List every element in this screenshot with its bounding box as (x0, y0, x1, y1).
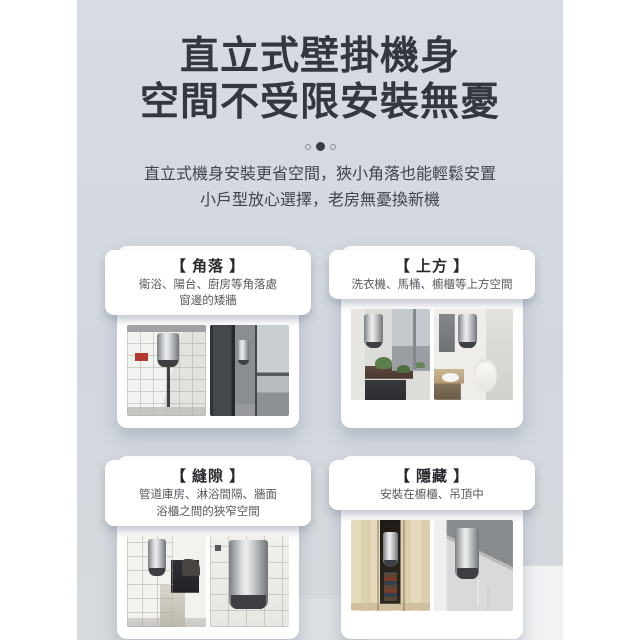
page-subtitle-line2: 小戶型放心選擇，老房無憂換新機 (77, 188, 563, 214)
card-hidden: 【 隱藏 】 安裝在櫥櫃、吊頂中 (341, 456, 523, 638)
page-subtitle: 直立式機身安裝更省空間，狹小角落也能輕鬆安置 小戶型放心選擇，老房無憂換新機 (77, 162, 563, 213)
page-title: 直立式壁掛機身 空間不受限安裝無憂 (77, 34, 563, 126)
water-heater-icon (229, 540, 269, 609)
card-corner-description: 衛浴、陽台、廚房等角落處 窗邊的矮牆 (111, 277, 305, 309)
water-heater-icon (364, 314, 383, 349)
card-gap-description: 管道庫房、淋浴間隔、牆面 浴櫃之間的狹窄空間 (111, 487, 305, 519)
photo-above-balcony-counter (351, 309, 430, 400)
card-above: 【 上方 】 洗衣機、馬桶、櫥櫃等上方空間 (341, 246, 523, 428)
card-gap-photos (127, 536, 289, 627)
card-gap: 【 縫隙 】 管道庫房、淋浴間隔、牆面 浴櫃之間的狹窄空間 (117, 456, 299, 638)
carousel-dot-3[interactable] (330, 144, 336, 150)
page-subtitle-line1: 直立式機身安裝更省空間，狹小角落也能輕鬆安置 (77, 162, 563, 188)
card-hidden-photos (351, 520, 513, 611)
page-title-line1: 直立式壁掛機身 (77, 34, 563, 80)
photo-bathroom-corner (127, 325, 206, 416)
cards-grid: 【 角落 】 衛浴、陽台、廚房等角落處 窗邊的矮牆 (77, 246, 563, 638)
photo-gap-above-washer (127, 536, 206, 627)
page-title-line2: 空間不受限安裝無憂 (77, 80, 563, 126)
card-corner: 【 角落 】 衛浴、陽台、廚房等角落處 窗邊的矮牆 (117, 246, 299, 428)
card-above-description: 洗衣機、馬桶、櫥櫃等上方空間 (335, 277, 529, 293)
water-heater-icon (383, 532, 397, 567)
card-above-header: 【 上方 】 洗衣機、馬桶、櫥櫃等上方空間 (329, 250, 535, 299)
water-heater-icon (237, 340, 250, 365)
card-corner-title: 【 角落 】 (111, 255, 305, 276)
photo-above-toilet (434, 309, 513, 400)
photo-hidden-under-ceiling (434, 520, 513, 611)
water-heater-icon (455, 528, 479, 579)
photo-heater-closeup (210, 536, 289, 627)
photo-hidden-in-cabinet (351, 520, 430, 611)
page-root: 直立式壁掛機身 空間不受限安裝無憂 直立式機身安裝更省空間，狹小角落也能輕鬆安置… (0, 0, 640, 640)
carousel-dot-1[interactable] (305, 144, 311, 150)
card-hidden-description: 安裝在櫥櫃、吊頂中 (335, 487, 529, 503)
card-hidden-title: 【 隱藏 】 (335, 465, 529, 486)
card-above-photos (351, 309, 513, 400)
water-heater-icon (458, 314, 477, 349)
carousel-dot-2-active[interactable] (316, 142, 325, 151)
card-corner-photos (127, 325, 289, 416)
card-gap-header: 【 縫隙 】 管道庫房、淋浴間隔、牆面 浴櫃之間的狹窄空間 (105, 460, 311, 525)
water-heater-icon (157, 333, 179, 368)
water-heater-icon (148, 539, 167, 575)
card-gap-title: 【 縫隙 】 (111, 465, 305, 486)
photo-balcony-corner (210, 325, 289, 416)
card-above-title: 【 上方 】 (335, 255, 529, 276)
card-hidden-header: 【 隱藏 】 安裝在櫥櫃、吊頂中 (329, 460, 535, 509)
card-corner-header: 【 角落 】 衛浴、陽台、廚房等角落處 窗邊的矮牆 (105, 250, 311, 315)
carousel-dots (77, 142, 563, 151)
content-stage: 直立式壁掛機身 空間不受限安裝無憂 直立式機身安裝更省空間，狹小角落也能輕鬆安置… (77, 0, 563, 640)
